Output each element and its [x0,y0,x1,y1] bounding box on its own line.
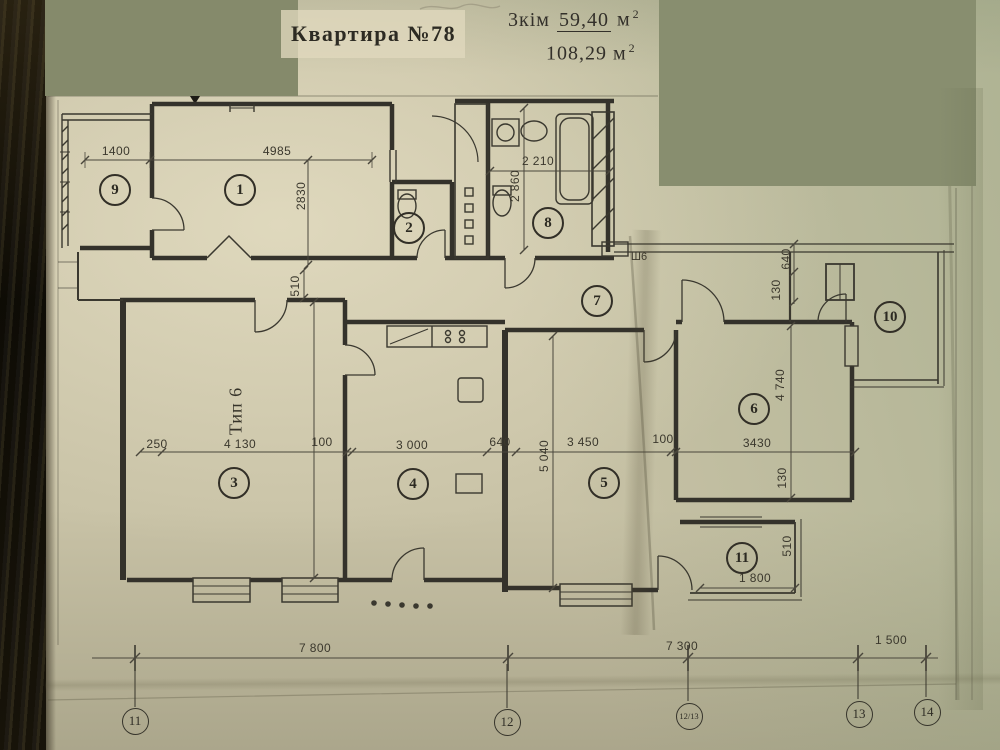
axis-marker: 13 [846,701,873,728]
room-number: 3 [230,475,238,492]
fridge-icon [458,378,483,402]
dimension-label: 1 500 [875,633,907,647]
dimension-label: 3430 [743,436,771,450]
room-number: 2 [405,220,413,237]
room-number: 1 [236,182,244,199]
dimension-label: 5 040 [537,440,551,472]
dimension-label: 2830 [294,182,308,210]
apartment-title: Квартира №78 [291,21,456,47]
dimension-label: 3 450 [567,435,599,449]
axis-marker: 11 [122,708,149,735]
dimension-label: 100 [311,435,332,449]
dimension-label: 4 740 [773,369,787,401]
scanned-floorplan-photo: Квартира №78 3кім59,40 м2 108,29 м2 1400… [0,0,1000,750]
room-number: 5 [600,475,608,492]
room-number-badge: 8 [532,207,564,239]
axis-marker: 14 [914,699,941,726]
room-number-badge: 6 [738,393,770,425]
room-number-badge: 5 [588,467,620,499]
area-unit: м [613,43,627,65]
washing-machine-icon [492,119,519,146]
table-icon [456,474,482,493]
room-number-badge: 4 [397,468,429,500]
bathtub-icon [556,114,593,204]
dimension-label: 7 800 [299,641,331,655]
redaction-box-top-right [659,0,976,186]
dimension-label: 510 [288,275,302,296]
room-number-badge: 10 [874,301,906,333]
room-number: 4 [409,476,417,493]
redaction-box-top-left [45,0,298,96]
dimension-label: 4 130 [224,437,256,451]
dimension-label: 1400 [102,144,130,158]
dimension-label: 640 [779,248,793,269]
room-number-badge: 7 [581,285,613,317]
dimension-label: 2 860 [508,170,522,202]
room-number-badge: 9 [99,174,131,206]
dimension-label: 4985 [263,144,291,158]
axis-number: 12 [501,714,514,730]
axis-number: 12/13 [679,711,698,721]
apartment-type-label: Тип 6 [226,387,247,435]
kitchen-counter-icon [387,326,487,347]
living-area-line: 3кім59,40 м2 [508,7,640,32]
room-number-badge: 1 [224,174,256,206]
room-number: 10 [883,309,898,326]
area-unit-exponent: 2 [629,41,636,55]
dimension-label: 3 000 [396,438,428,452]
dimension-label: 250 [146,437,167,451]
total-area-line: 108,29 м2 [546,41,636,66]
axis-number: 13 [853,706,866,722]
dimension-label: 130 [775,467,789,488]
axis-marker: 12/13 [676,703,703,730]
room-number: 9 [111,182,119,199]
room-number-badge: 2 [393,212,425,244]
living-area-value: 59,40 [557,9,611,32]
axis-number: 14 [921,704,934,720]
door-swing-arcs [152,116,846,590]
area-unit-exponent: 2 [633,7,640,21]
threshold-dots [371,600,433,609]
room-number-badge: 11 [726,542,758,574]
axis-number: 11 [129,713,142,729]
total-area-value: 108,29 [546,43,607,65]
dimension-label: 640 [489,435,510,449]
dimension-label: 130 [769,279,783,300]
room-number: 6 [750,401,758,418]
room-number: 7 [593,293,601,310]
room-number: 11 [735,550,749,567]
dimension-label: 7 300 [666,639,698,653]
rooms-count-label: 3кім [508,9,550,31]
dimension-label: 2 210 [522,154,554,168]
sink-icon [521,121,547,141]
room-number: 8 [544,215,552,232]
paper-fold-right [938,88,983,710]
dimension-label: 510 [780,535,794,556]
area-unit: м [617,9,631,31]
axis-marker: 12 [494,709,521,736]
room-number-badge: 3 [218,467,250,499]
